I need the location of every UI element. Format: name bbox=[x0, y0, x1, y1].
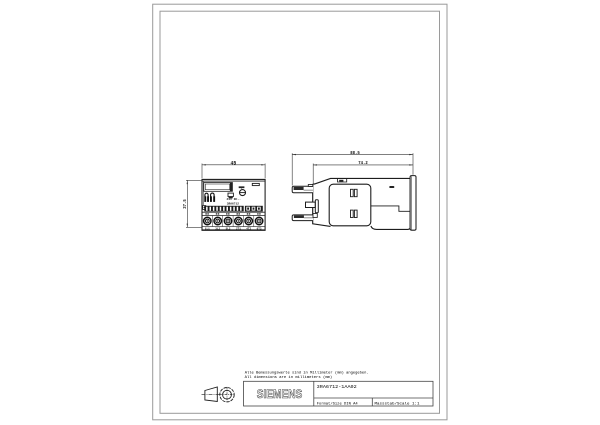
svg-text:All dimensions are in millimet: All dimensions are in millimeters (mm) bbox=[245, 375, 333, 380]
svg-text:4T2: 4T2 bbox=[246, 227, 251, 230]
svg-text:Format/Size DIN A4: Format/Size DIN A4 bbox=[317, 401, 359, 406]
svg-text:2T1: 2T1 bbox=[236, 227, 241, 230]
svg-text:3RA6712-1AA02: 3RA6712-1AA02 bbox=[317, 384, 357, 390]
svg-text:88.5: 88.5 bbox=[350, 151, 360, 156]
svg-text:1L1: 1L1 bbox=[205, 227, 210, 230]
svg-text:Massstab/Scale 1:1: Massstab/Scale 1:1 bbox=[375, 401, 421, 406]
svg-text:6T3: 6T3 bbox=[257, 227, 262, 230]
svg-text:SIEMENS: SIEMENS bbox=[257, 387, 303, 401]
svg-text:5L3: 5L3 bbox=[226, 227, 231, 230]
svg-text:37.5: 37.5 bbox=[183, 199, 188, 209]
svg-text:Alle Bemessungswerte sind in M: Alle Bemessungswerte sind in Millimeter … bbox=[245, 371, 369, 376]
svg-text:3L2: 3L2 bbox=[215, 227, 220, 230]
svg-text:45: 45 bbox=[231, 161, 237, 167]
svg-text:74.2: 74.2 bbox=[358, 161, 368, 166]
svg-text:3RA6712: 3RA6712 bbox=[227, 201, 239, 205]
